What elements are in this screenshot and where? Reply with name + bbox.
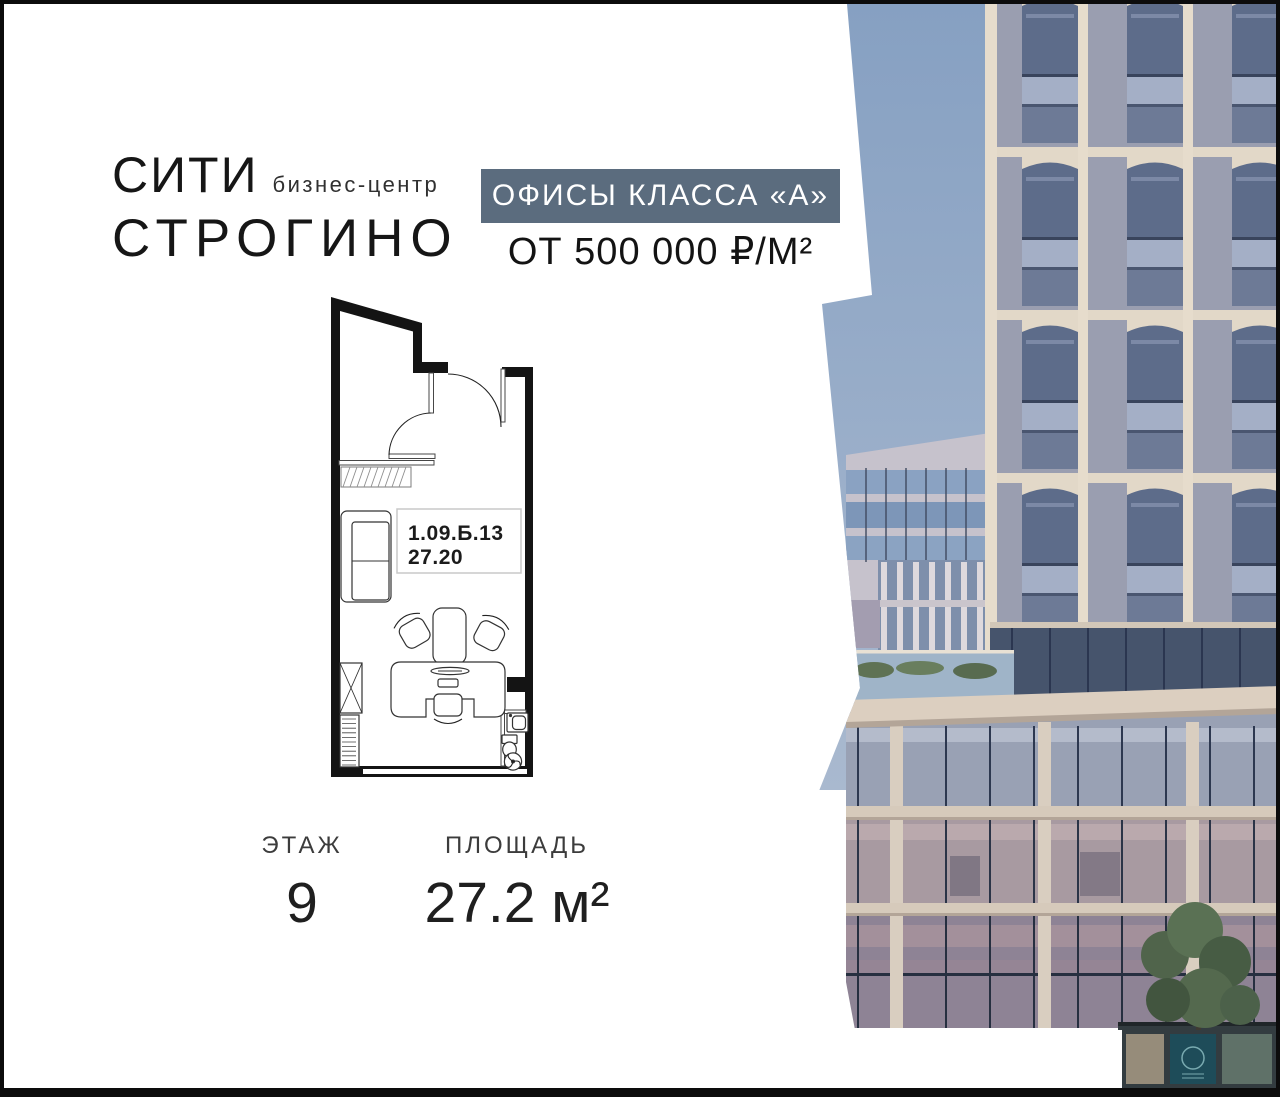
interior-wall-stub: [389, 454, 435, 459]
meeting-table: [433, 608, 466, 664]
wardrobe: [340, 663, 362, 713]
plan-entry-stub-wall: [413, 362, 448, 373]
offer-badge-label: ОФИСЫ КЛАССА «А»: [492, 179, 829, 213]
unit-area: 27.20: [408, 546, 463, 569]
interior-door-leaf: [429, 373, 434, 413]
plan-bottom-window: [363, 769, 527, 774]
floor-label: ЭТАЖ: [202, 832, 402, 860]
brand-name-line2: СТРОГИНО: [112, 208, 459, 269]
sofa: [341, 511, 391, 602]
guest-chair-left: [392, 609, 434, 652]
brand-logo: СИТИ бизнес-центр СТРОГИНО: [112, 146, 459, 269]
storefront: [1118, 1022, 1280, 1088]
offer-price: ОТ 500 000 ₽/М²: [473, 229, 848, 274]
floor-value: 9: [202, 870, 402, 936]
plan-shaft-block: [507, 677, 525, 692]
area-value: 27.2 м²: [387, 870, 647, 936]
wc-fan: [504, 753, 521, 770]
radiator: [340, 715, 359, 767]
entry-door-arc: [448, 374, 501, 427]
entry-door-jamb: [501, 369, 505, 422]
mid-rise-buildings: [846, 433, 1000, 652]
flyer-canvas: СИТИ бизнес-центр СТРОГИНО ОФИСЫ КЛАССА …: [0, 0, 1280, 1097]
floor-plan: 1.09.Б.13 27.20: [328, 292, 540, 790]
interior-door-arc: [389, 413, 431, 455]
guest-chair-right: [470, 611, 512, 653]
offer-badge: ОФИСЫ КЛАССА «А»: [481, 169, 840, 223]
unit-label-box: 1.09.Б.13 27.20: [397, 509, 521, 573]
wc-sink: [507, 713, 528, 732]
shelf-line: [339, 461, 434, 466]
unit-number: 1.09.Б.13: [408, 522, 504, 545]
brand-subtitle: бизнес-центр: [273, 172, 440, 198]
coat-rack: [341, 467, 411, 487]
details-floor: ЭТАЖ 9: [202, 832, 402, 936]
office-chair: [434, 694, 462, 724]
details-area: ПЛОЩАДЬ 27.2 м²: [387, 832, 647, 936]
area-label: ПЛОЩАДЬ: [387, 832, 647, 860]
brand-name-line1: СИТИ: [112, 146, 259, 204]
